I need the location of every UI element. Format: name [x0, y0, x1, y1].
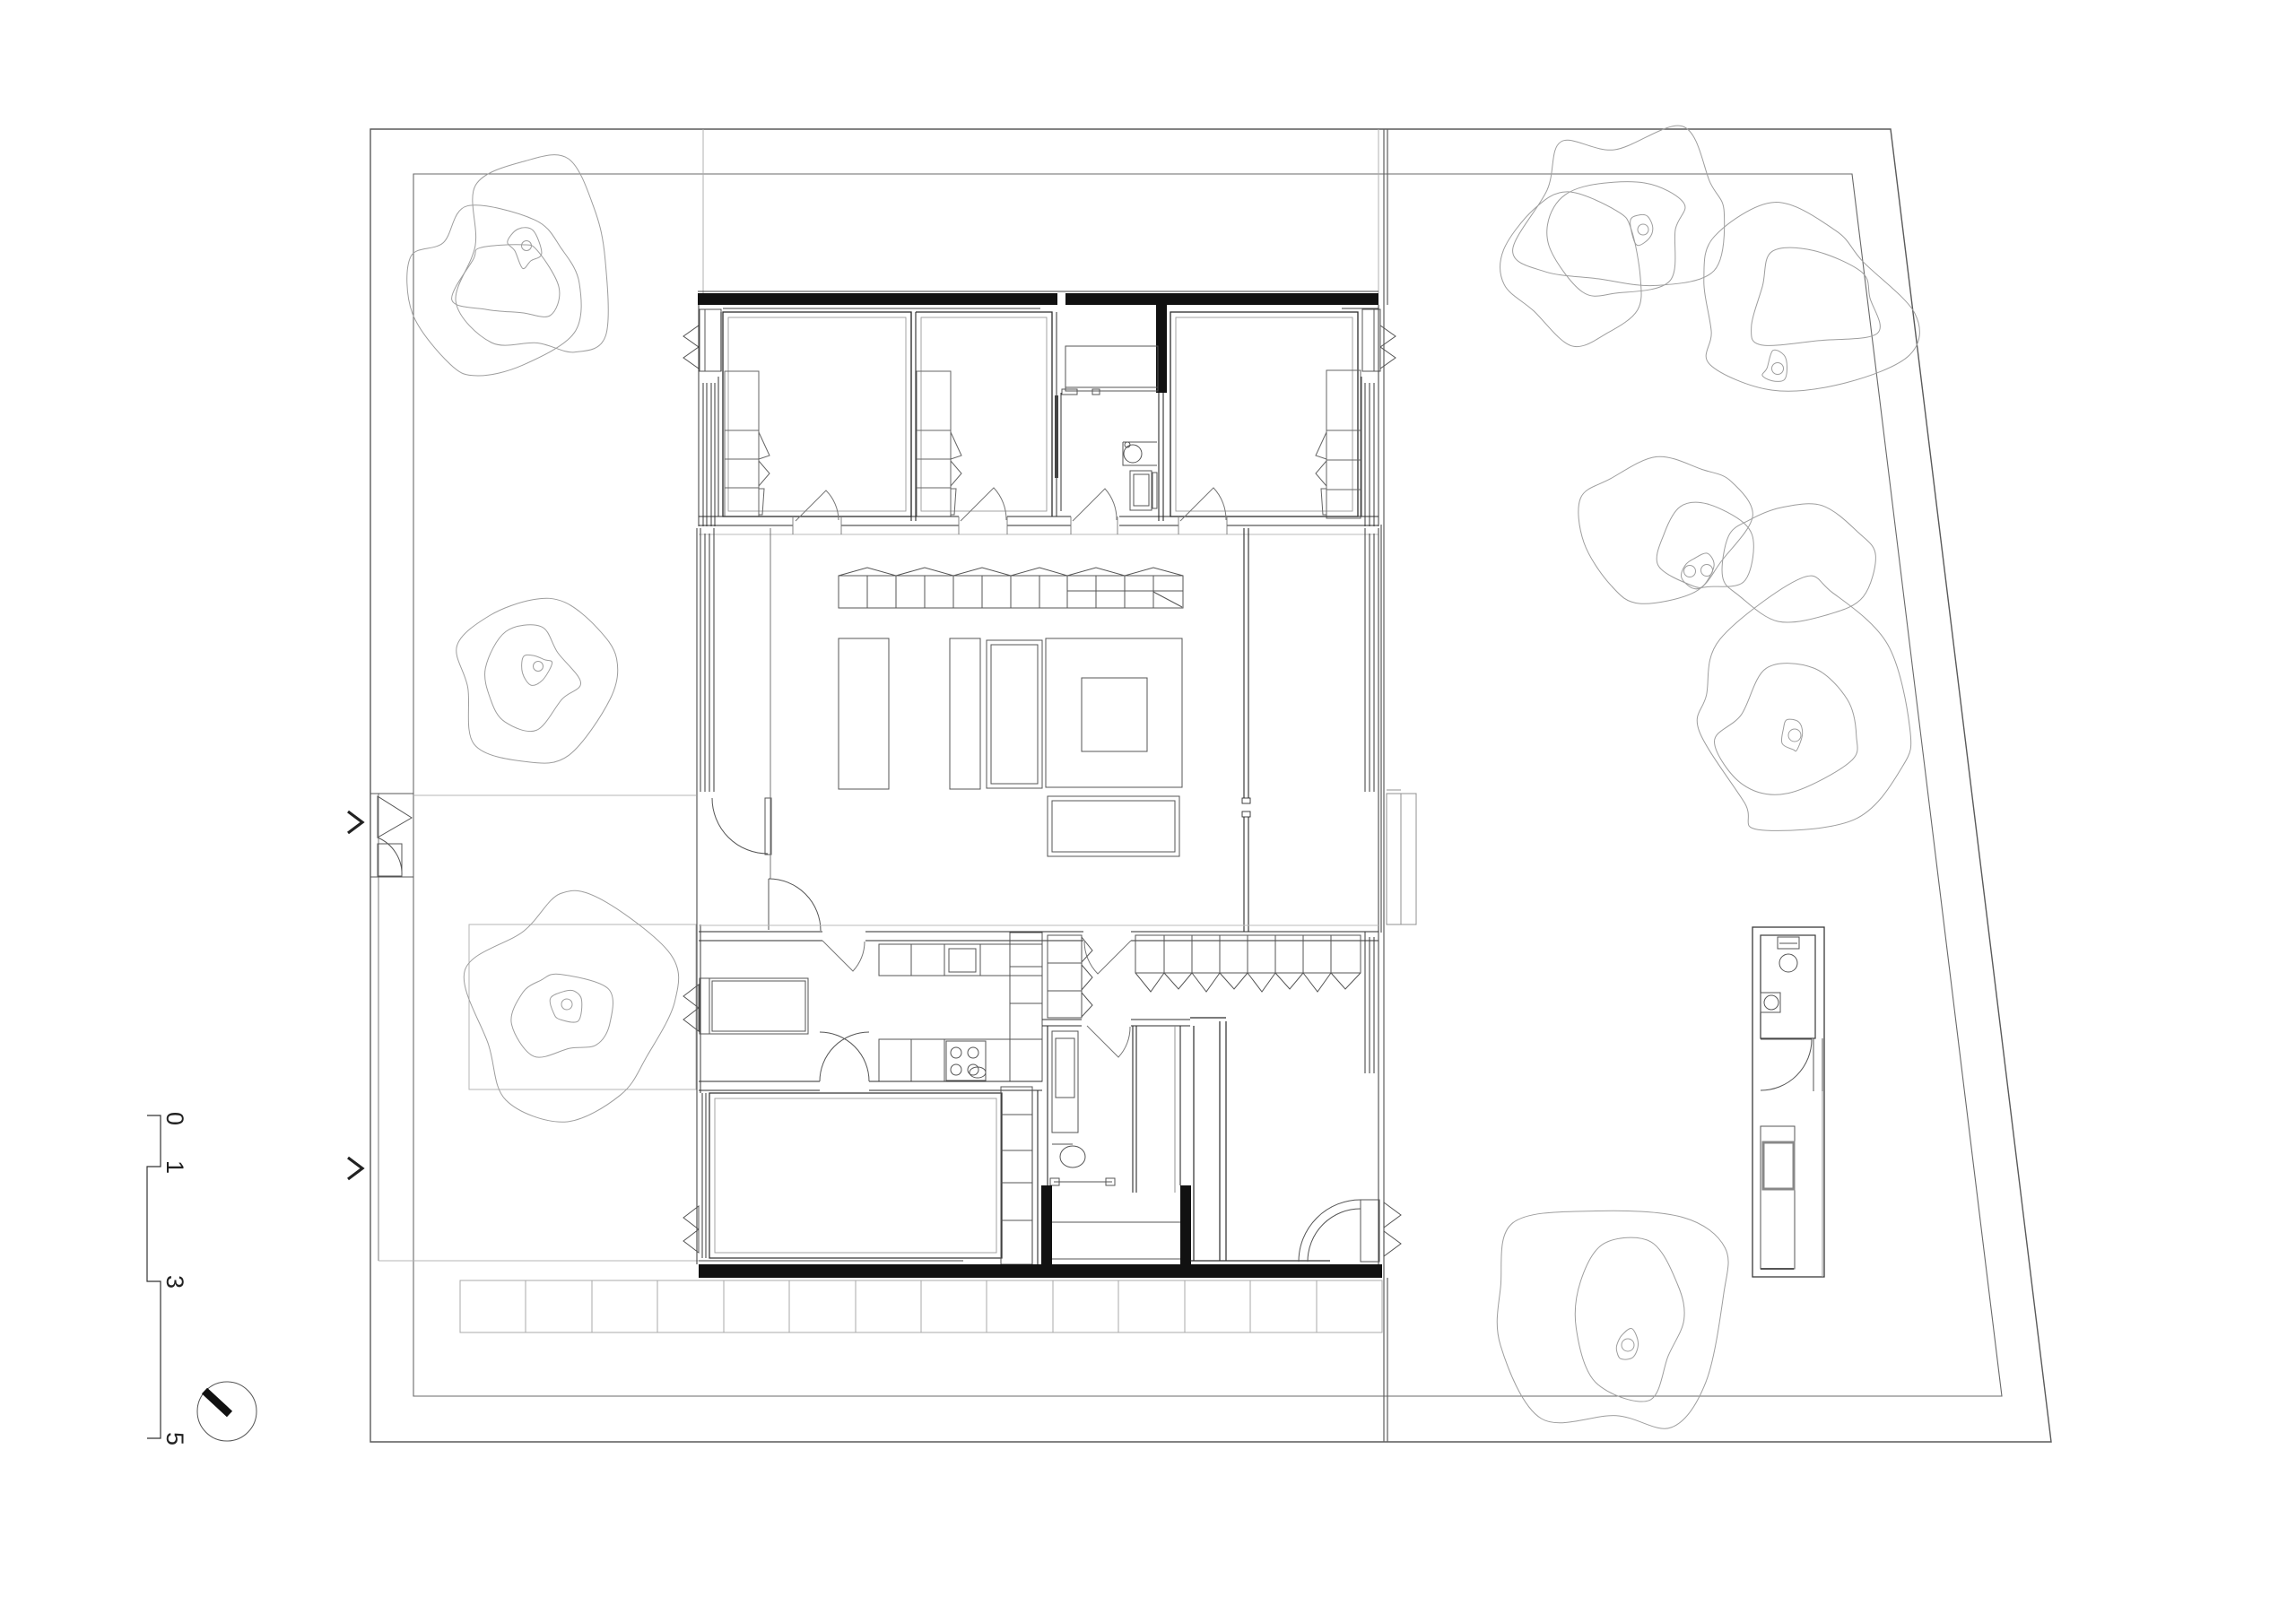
svg-text:3: 3: [161, 1275, 188, 1289]
svg-text:0: 0: [161, 1112, 188, 1125]
svg-text:5: 5: [161, 1432, 188, 1445]
svg-text:1: 1: [161, 1160, 188, 1174]
